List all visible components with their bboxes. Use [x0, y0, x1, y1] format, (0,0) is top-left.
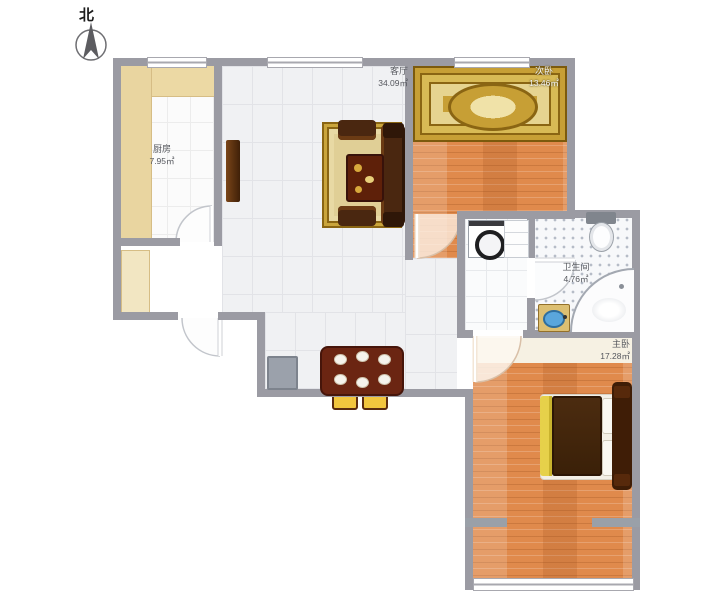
kitchen-name: 厨房 — [153, 144, 171, 154]
bed-duvet — [552, 396, 602, 476]
wall-segment — [632, 210, 640, 590]
laundry-counter — [504, 220, 529, 258]
living-room-window — [267, 57, 363, 68]
sofa-end-table — [383, 123, 404, 138]
floor-plan: 北 — [0, 0, 720, 602]
sofa — [381, 124, 405, 226]
master-bedroom-area: 17.28㎡ — [584, 351, 630, 362]
bathroom-label: 卫生间 4.76㎡ — [548, 262, 604, 285]
living-room-label: 客厅 34.09㎡ — [356, 66, 408, 89]
washing-machine — [468, 220, 506, 258]
coffee-table — [346, 154, 384, 202]
bedroom2-vestibule-floor — [413, 211, 457, 258]
toilet — [589, 222, 614, 252]
hall-cabinet — [121, 250, 150, 314]
wall-segment — [457, 211, 465, 338]
carpet-medallion — [448, 83, 538, 131]
hallway-floor — [405, 258, 457, 389]
bedroom2-label: 次卧 13.46㎡ — [518, 66, 570, 89]
tv-cabinet — [226, 140, 240, 202]
armchair — [338, 120, 376, 140]
compass-icon — [68, 18, 114, 66]
wall-segment — [465, 389, 473, 590]
master-bedroom-label: 主卧 17.28㎡ — [584, 339, 630, 362]
kitchen-area: 7.95㎡ — [132, 156, 192, 167]
wall-segment — [113, 238, 180, 246]
wall-segment — [214, 58, 222, 246]
wall-segment — [113, 58, 121, 320]
wall-segment — [113, 312, 178, 320]
living-room-area: 34.09㎡ — [356, 78, 408, 89]
kitchen-window — [147, 57, 207, 68]
bathroom-name: 卫生间 — [562, 262, 589, 272]
master-bedroom-window — [473, 578, 634, 591]
wall-stub — [465, 518, 507, 527]
wall-segment — [465, 330, 473, 338]
armchair — [338, 206, 376, 226]
living-room-name: 客厅 — [390, 66, 408, 76]
wall-segment — [257, 312, 265, 397]
bedroom2-name: 次卧 — [535, 66, 553, 76]
bedroom2-area: 13.46㎡ — [518, 78, 570, 89]
bed-blanket — [540, 396, 552, 476]
dining-table — [320, 346, 404, 396]
kitchen-label: 厨房 7.95㎡ — [132, 144, 192, 167]
side-cabinet — [267, 356, 298, 390]
wall-segment — [465, 211, 575, 219]
wall-stub — [592, 518, 640, 527]
master-bedroom-name: 主卧 — [612, 339, 630, 349]
bathroom-sink — [538, 304, 570, 332]
sofa-end-table — [383, 212, 404, 227]
bed-headboard — [612, 382, 632, 490]
bathroom-area: 4.76㎡ — [548, 274, 604, 285]
